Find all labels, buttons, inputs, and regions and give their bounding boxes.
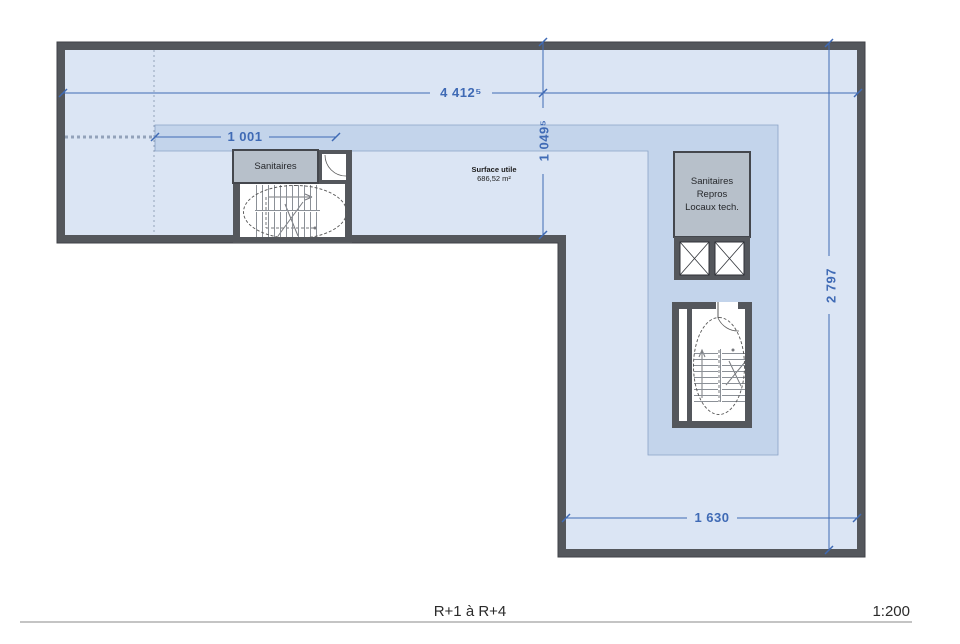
right-room-line1: Sanitaires bbox=[691, 175, 733, 188]
footer-scale: 1:200 bbox=[830, 603, 910, 620]
right-room-label: Sanitaires Repros Locaux tech. bbox=[674, 152, 750, 237]
stair-walkline-ellipse bbox=[243, 185, 347, 239]
dimension-right-leg-width: 1 630 bbox=[662, 510, 762, 525]
elevator-block bbox=[674, 237, 750, 280]
floor-plan-page: 4 412⁵ 1 001 1 049⁵ 2 797 1 630 Sanitair… bbox=[0, 0, 960, 644]
dimension-left-zone-width: 1 001 bbox=[195, 129, 295, 144]
dimension-total-width: 4 412⁵ bbox=[411, 85, 511, 100]
right-room-line2: Repros bbox=[697, 188, 728, 201]
dimension-right-leg-height: 2 797 bbox=[824, 236, 839, 336]
stair-walkline-ellipse bbox=[693, 317, 745, 415]
surface-value: 686,52 m² bbox=[439, 175, 549, 184]
right-room-line3: Locaux tech. bbox=[685, 201, 739, 214]
footer-levels: R+1 à R+4 bbox=[395, 603, 545, 620]
surface-annotation: Surface utile 686,52 m² bbox=[439, 166, 549, 183]
left-sanitaires-label: Sanitaires bbox=[233, 150, 318, 183]
